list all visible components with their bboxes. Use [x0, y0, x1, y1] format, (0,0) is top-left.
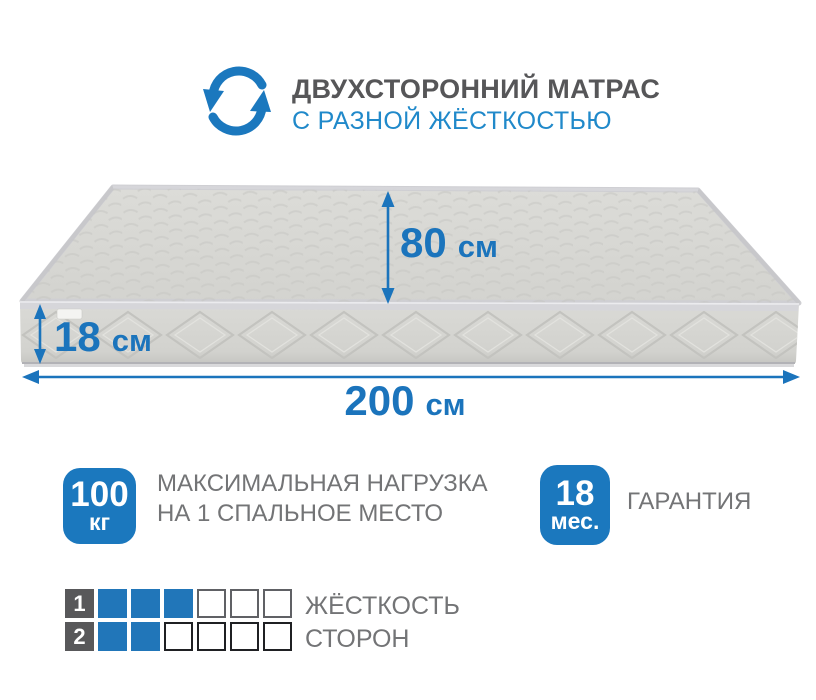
warranty-value: 18	[556, 478, 595, 510]
max-load-value: 100	[70, 479, 128, 511]
firmness-label-line1: ЖЁСТКОСТЬ	[305, 590, 460, 623]
firmness-cell-empty	[164, 622, 193, 651]
firmness-cell-empty	[230, 589, 259, 618]
firmness-cell-empty	[263, 589, 292, 618]
dim-top-value: 80	[400, 219, 447, 266]
dim-top-unit: см	[458, 229, 498, 264]
firmness-side1-scale	[98, 589, 292, 618]
firmness-cell-filled	[98, 622, 127, 651]
dim-height-value: 18	[54, 313, 101, 360]
firmness-side2-number: 2	[65, 622, 94, 651]
warranty-unit: мес.	[551, 510, 600, 532]
warranty-label-line1: ГАРАНТИЯ	[627, 487, 751, 517]
firmness-label-line2: СТОРОН	[305, 623, 460, 656]
dim-length-unit: см	[425, 387, 465, 422]
firmness-side2-scale	[98, 622, 292, 651]
dim-length-value: 200	[344, 377, 414, 424]
firmness-cell-filled	[131, 622, 160, 651]
mattress-infographic: ДВУХСТОРОННИЙ МАТРАС С РАЗНОЙ ЖЁСТКОСТЬЮ	[0, 0, 816, 700]
warranty-label: ГАРАНТИЯ	[627, 487, 751, 517]
dimension-length: 200см	[22, 370, 800, 424]
rotate-flip-icon	[203, 64, 271, 138]
dim-height-unit: см	[112, 323, 152, 358]
max-load-label-line2: НА 1 СПАЛЬНОЕ МЕСТО	[157, 499, 488, 529]
firmness-cell-empty	[197, 589, 226, 618]
svg-text:200см: 200см	[344, 377, 465, 424]
max-load-badge: 100 кг	[63, 468, 136, 544]
warranty-badge: 18 мес.	[540, 465, 610, 545]
firmness-label: ЖЁСТКОСТЬ СТОРОН	[305, 590, 460, 656]
max-load-label: МАКСИМАЛЬНАЯ НАГРУЗКА НА 1 СПАЛЬНОЕ МЕСТ…	[157, 469, 488, 529]
firmness-cell-empty	[197, 622, 226, 651]
firmness-cell-filled	[131, 589, 160, 618]
firmness-cell-filled	[164, 589, 193, 618]
max-load-label-line1: МАКСИМАЛЬНАЯ НАГРУЗКА	[157, 469, 488, 499]
firmness-side1-number: 1	[65, 589, 94, 618]
mattress-diagram: 80см 18см 200см	[0, 170, 816, 430]
page-subtitle: С РАЗНОЙ ЖЁСТКОСТЬЮ	[292, 107, 772, 136]
max-load-unit: кг	[89, 511, 110, 533]
firmness-cell-filled	[98, 589, 127, 618]
firmness-row-side1: 1	[65, 589, 292, 618]
firmness-cell-empty	[230, 622, 259, 651]
firmness-row-side2: 2	[65, 622, 292, 651]
firmness-cell-empty	[263, 622, 292, 651]
page-title: ДВУХСТОРОННИЙ МАТРАС	[292, 74, 772, 105]
